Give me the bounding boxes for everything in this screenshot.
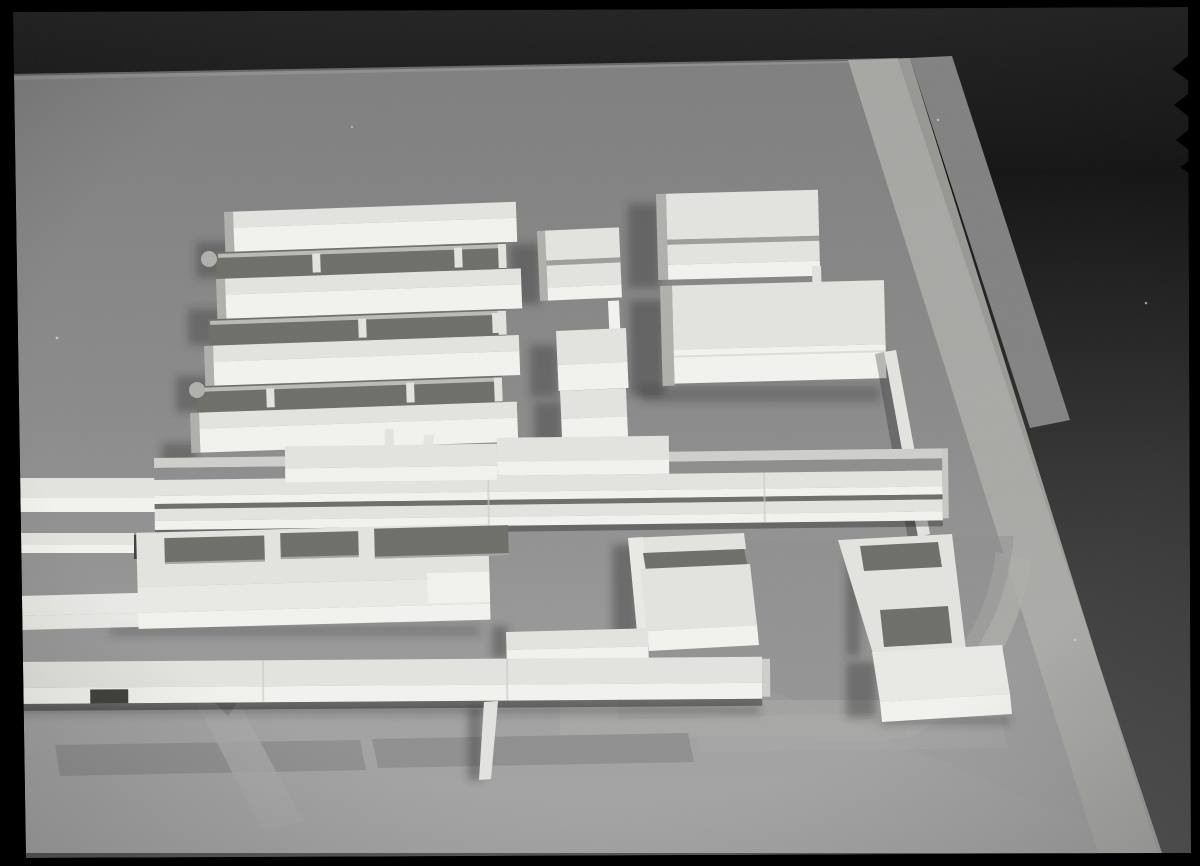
photograph [0, 0, 1200, 866]
film-grain [13, 7, 1191, 858]
film-frame [0, 0, 1200, 866]
model-photo-svg [0, 0, 1200, 866]
